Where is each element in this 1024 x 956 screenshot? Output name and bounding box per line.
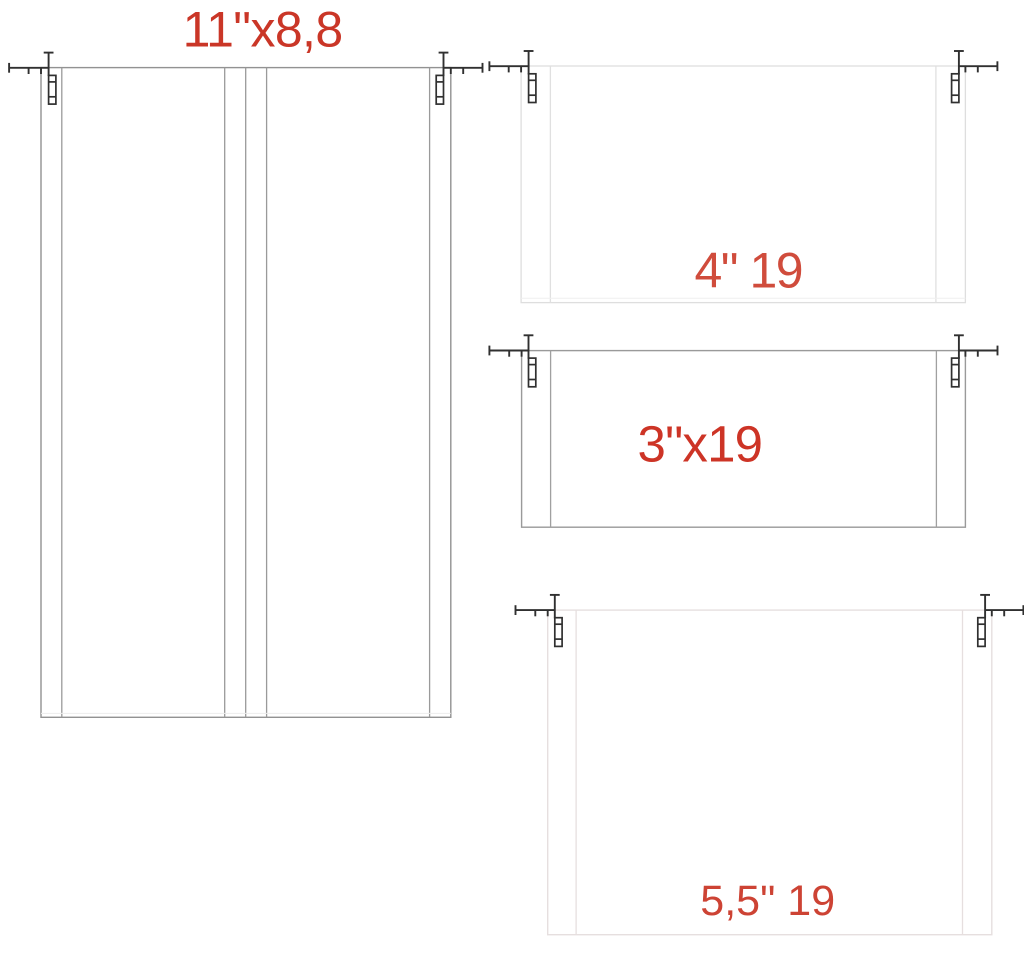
svg-text:4" 19: 4" 19 [695,243,803,299]
svg-text:5,5" 19: 5,5" 19 [700,877,835,925]
svg-text:11"x8,8: 11"x8,8 [183,2,343,58]
svg-text:3"x19: 3"x19 [638,416,763,473]
